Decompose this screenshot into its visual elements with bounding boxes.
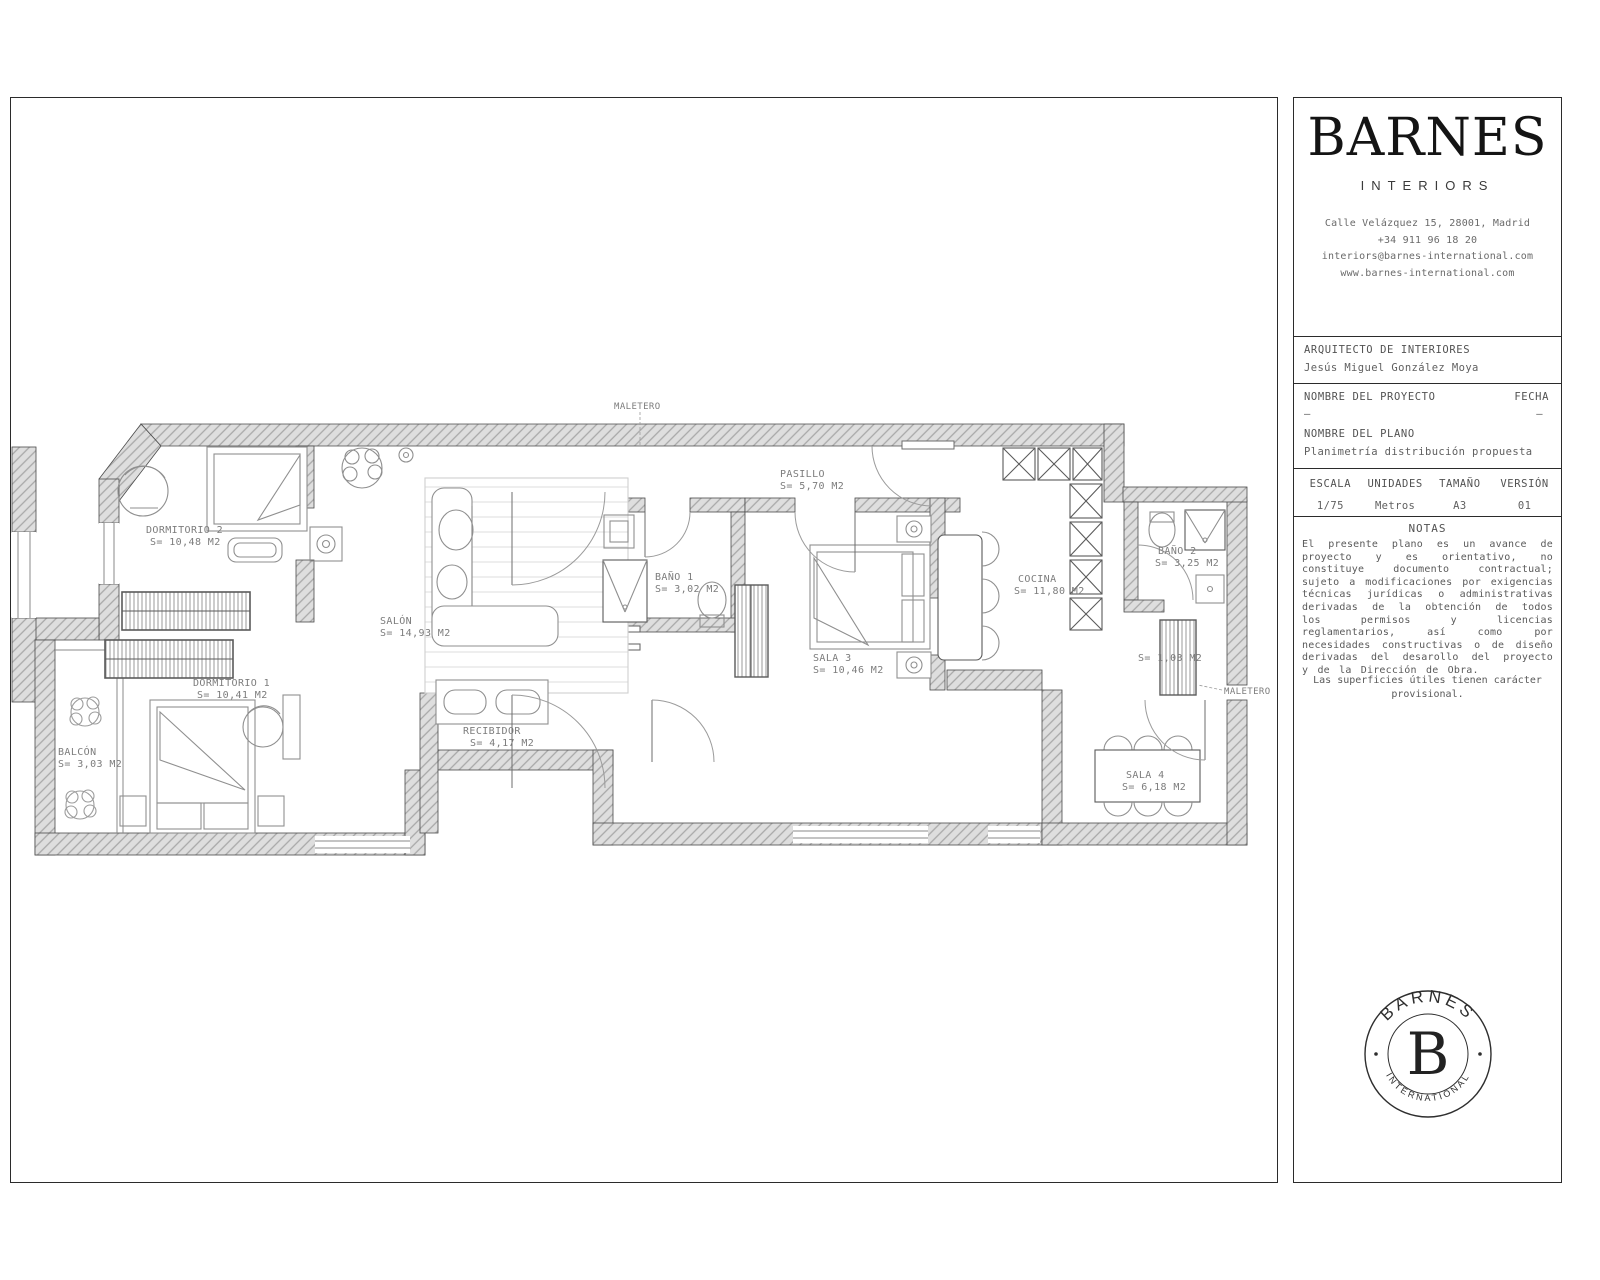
contact-block: Calle Velázquez 15, 28001, Madrid +34 91… (1294, 216, 1561, 282)
salon-plant (342, 448, 413, 488)
notes-body: El presente plano es un avance de proyec… (1302, 539, 1553, 678)
project-value: – (1304, 408, 1311, 420)
phone-line: +34 911 96 18 20 (1294, 233, 1561, 250)
label-balcon-area: S= 3,03 M2 (58, 759, 122, 770)
wardrobe-sala-3 (735, 585, 768, 677)
scale-label: ESCALA (1310, 478, 1352, 490)
version-cell: VERSIÓN 01 (1492, 472, 1557, 512)
address-line: Calle Velázquez 15, 28001, Madrid (1294, 216, 1561, 233)
bed-dormitorio-1 (120, 700, 284, 833)
svg-text:BARNES: BARNES (1376, 987, 1479, 1025)
label-maletero-right: MALETERO (1224, 687, 1271, 697)
label-salon: SALÓN (380, 614, 412, 627)
label-dormitorio-2-area: S= 10,48 M2 (150, 537, 221, 548)
separator (1294, 468, 1561, 469)
balcony-plants (65, 697, 101, 819)
label-banio-1: BAÑO 1 (655, 570, 694, 583)
label-dormitorio-2: DORMITORIO 2 (146, 525, 223, 536)
barnes-logo-subtitle: INTERIORS (1294, 178, 1561, 193)
label-banio-2-area: S= 3,25 M2 (1155, 558, 1219, 569)
label-recibidor-area: S= 4,17 M2 (470, 738, 534, 749)
label-sala-3-area: S= 10,46 M2 (813, 665, 884, 676)
kitchen-island (938, 532, 999, 660)
kitchen-cabinets (1003, 448, 1102, 630)
project-label: NOMBRE DEL PROYECTO (1304, 391, 1436, 403)
units-cell: UNIDADES Metros (1363, 472, 1428, 512)
label-dormitorio-1: DORMITORIO 1 (193, 678, 270, 689)
label-maletero-top: MALETERO (614, 402, 661, 412)
date-label: FECHA (1514, 391, 1549, 403)
drawing-sheet: DORMITORIO 2 S= 10,48 M2 DORMITORIO 1 S=… (0, 0, 1600, 1280)
size-cell: TAMAÑO A3 (1428, 472, 1493, 512)
date-value: – (1536, 408, 1543, 420)
label-recibidor: RECIBIDOR (463, 726, 521, 737)
label-vestibulo-area: S= 1,03 M2 (1138, 653, 1202, 664)
notes-footer: Las superficies útiles tienen carácter p… (1308, 674, 1547, 702)
bed-dormitorio-2 (207, 447, 342, 562)
architect-label: ARQUITECTO DE INTERIORES (1304, 344, 1470, 356)
size-value: A3 (1428, 500, 1493, 512)
architect-name: Jesús Miguel González Moya (1304, 362, 1479, 374)
plan-name-label: NOMBRE DEL PLANO (1304, 428, 1415, 440)
barnes-seal: BARNES INTERNATIONAL B (1328, 954, 1528, 1154)
wardrobe-dormitorio-1 (105, 640, 233, 678)
label-banio-1-area: S= 3,02 M2 (655, 584, 719, 595)
label-sala-3: SALA 3 (813, 653, 852, 664)
scale-row: ESCALA 1/75 UNIDADES Metros TAMAÑO A3 VE… (1298, 472, 1557, 512)
title-block-panel: BARNES INTERIORS Calle Velázquez 15, 280… (1293, 97, 1562, 1183)
notes-title: NOTAS (1294, 522, 1561, 535)
version-label: VERSIÓN (1500, 478, 1548, 490)
label-banio-2: BAÑO 2 (1158, 544, 1197, 557)
plan-name-value: Planimetría distribución propuesta (1304, 446, 1533, 458)
label-pasillo-area: S= 5,70 M2 (780, 481, 844, 492)
email-line: interiors@barnes-international.com (1294, 249, 1561, 266)
label-pasillo: PASILLO (780, 469, 825, 480)
seal-dot-left (1374, 1052, 1378, 1056)
web-line: www.barnes-international.com (1294, 266, 1561, 283)
version-value: 01 (1492, 500, 1557, 512)
separator (1294, 336, 1561, 337)
separator (1294, 516, 1561, 517)
units-label: UNIDADES (1367, 478, 1422, 490)
label-cocina-area: S= 11,80 M2 (1014, 586, 1085, 597)
scale-cell: ESCALA 1/75 (1298, 472, 1363, 512)
label-balcon: BALCÓN (58, 745, 97, 758)
seal-monogram: B (1407, 1020, 1450, 1088)
label-salon-area: S= 14,93 M2 (380, 628, 451, 639)
separator (1294, 383, 1561, 384)
barnes-logo: BARNES (1294, 110, 1561, 167)
units-value: Metros (1363, 500, 1428, 512)
wardrobe-dormitorio-2 (122, 592, 250, 630)
label-sala-4: SALA 4 (1126, 770, 1165, 781)
seal-top-text: BARNES (1376, 987, 1479, 1025)
label-cocina: COCINA (1018, 574, 1057, 585)
label-sala-4-area: S= 6,18 M2 (1122, 782, 1186, 793)
scale-value: 1/75 (1298, 500, 1363, 512)
recibidor-console (436, 680, 548, 724)
size-label: TAMAÑO (1439, 478, 1481, 490)
label-dormitorio-1-area: S= 10,41 M2 (197, 690, 268, 701)
seal-dot-right (1478, 1052, 1482, 1056)
